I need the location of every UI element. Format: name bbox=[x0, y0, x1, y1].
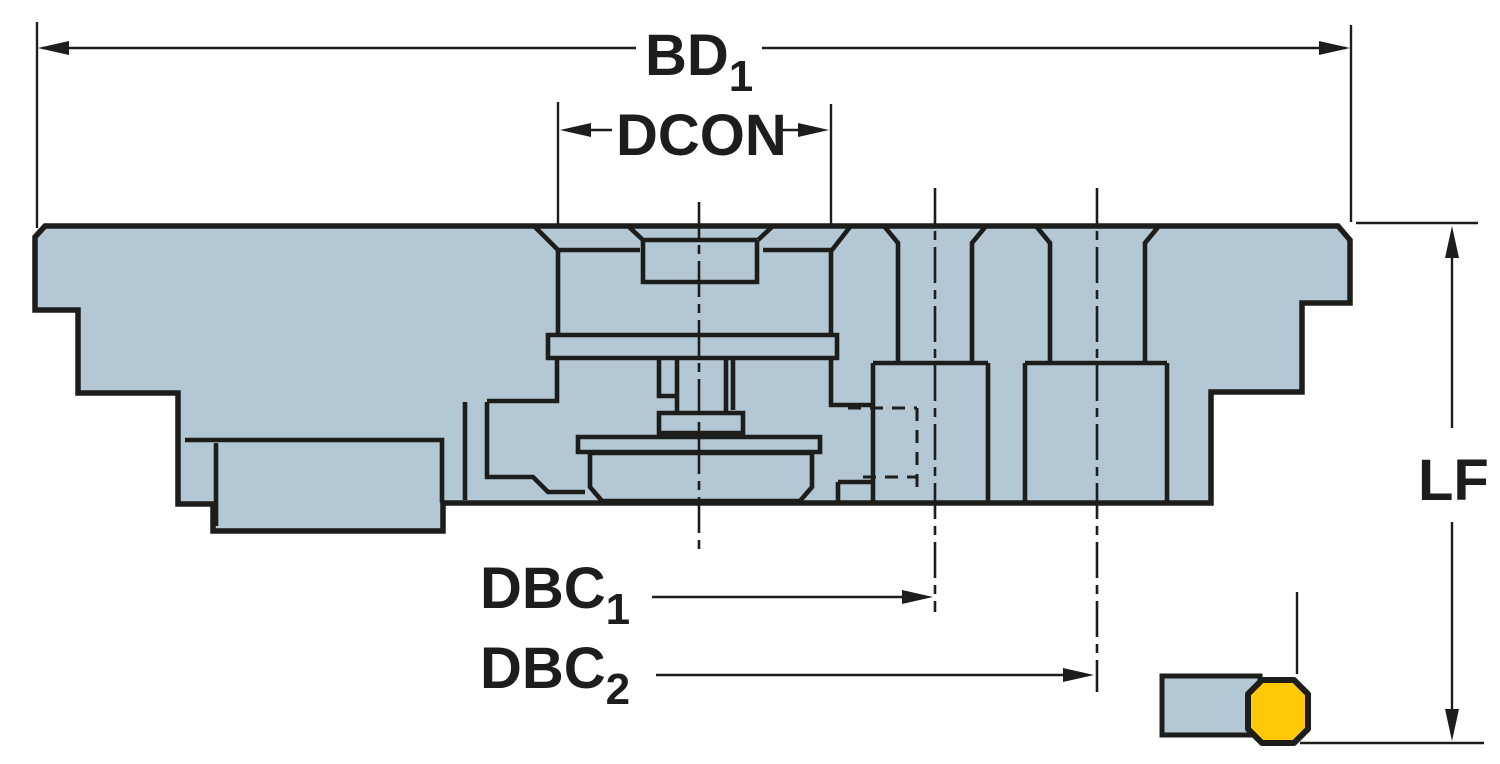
dcon-arrow-left bbox=[560, 123, 591, 137]
lf-arrow-up bbox=[1445, 226, 1459, 258]
label-dbc2: DBC2 bbox=[480, 636, 630, 714]
tool-body-outline bbox=[35, 226, 1350, 531]
dbc1-arrow bbox=[902, 590, 933, 604]
bd1-arrow-right bbox=[1319, 41, 1350, 55]
label-bd1: BD1 bbox=[645, 23, 753, 101]
label-dcon: DCON bbox=[616, 103, 787, 168]
dbc2-arrow bbox=[1063, 668, 1094, 682]
cutting-insert bbox=[1248, 680, 1308, 743]
label-dbc1: DBC1 bbox=[480, 556, 630, 634]
dcon-arrow-right bbox=[798, 123, 829, 137]
lf-arrow-down bbox=[1445, 709, 1459, 741]
label-lf: LF bbox=[1418, 448, 1489, 513]
technical-drawing-page: BD1 DCON DBC1 DBC2 LF bbox=[0, 0, 1500, 764]
bd1-arrow-left bbox=[38, 41, 69, 55]
tool-cross-section-drawing: BD1 DCON DBC1 DBC2 LF bbox=[0, 0, 1500, 764]
